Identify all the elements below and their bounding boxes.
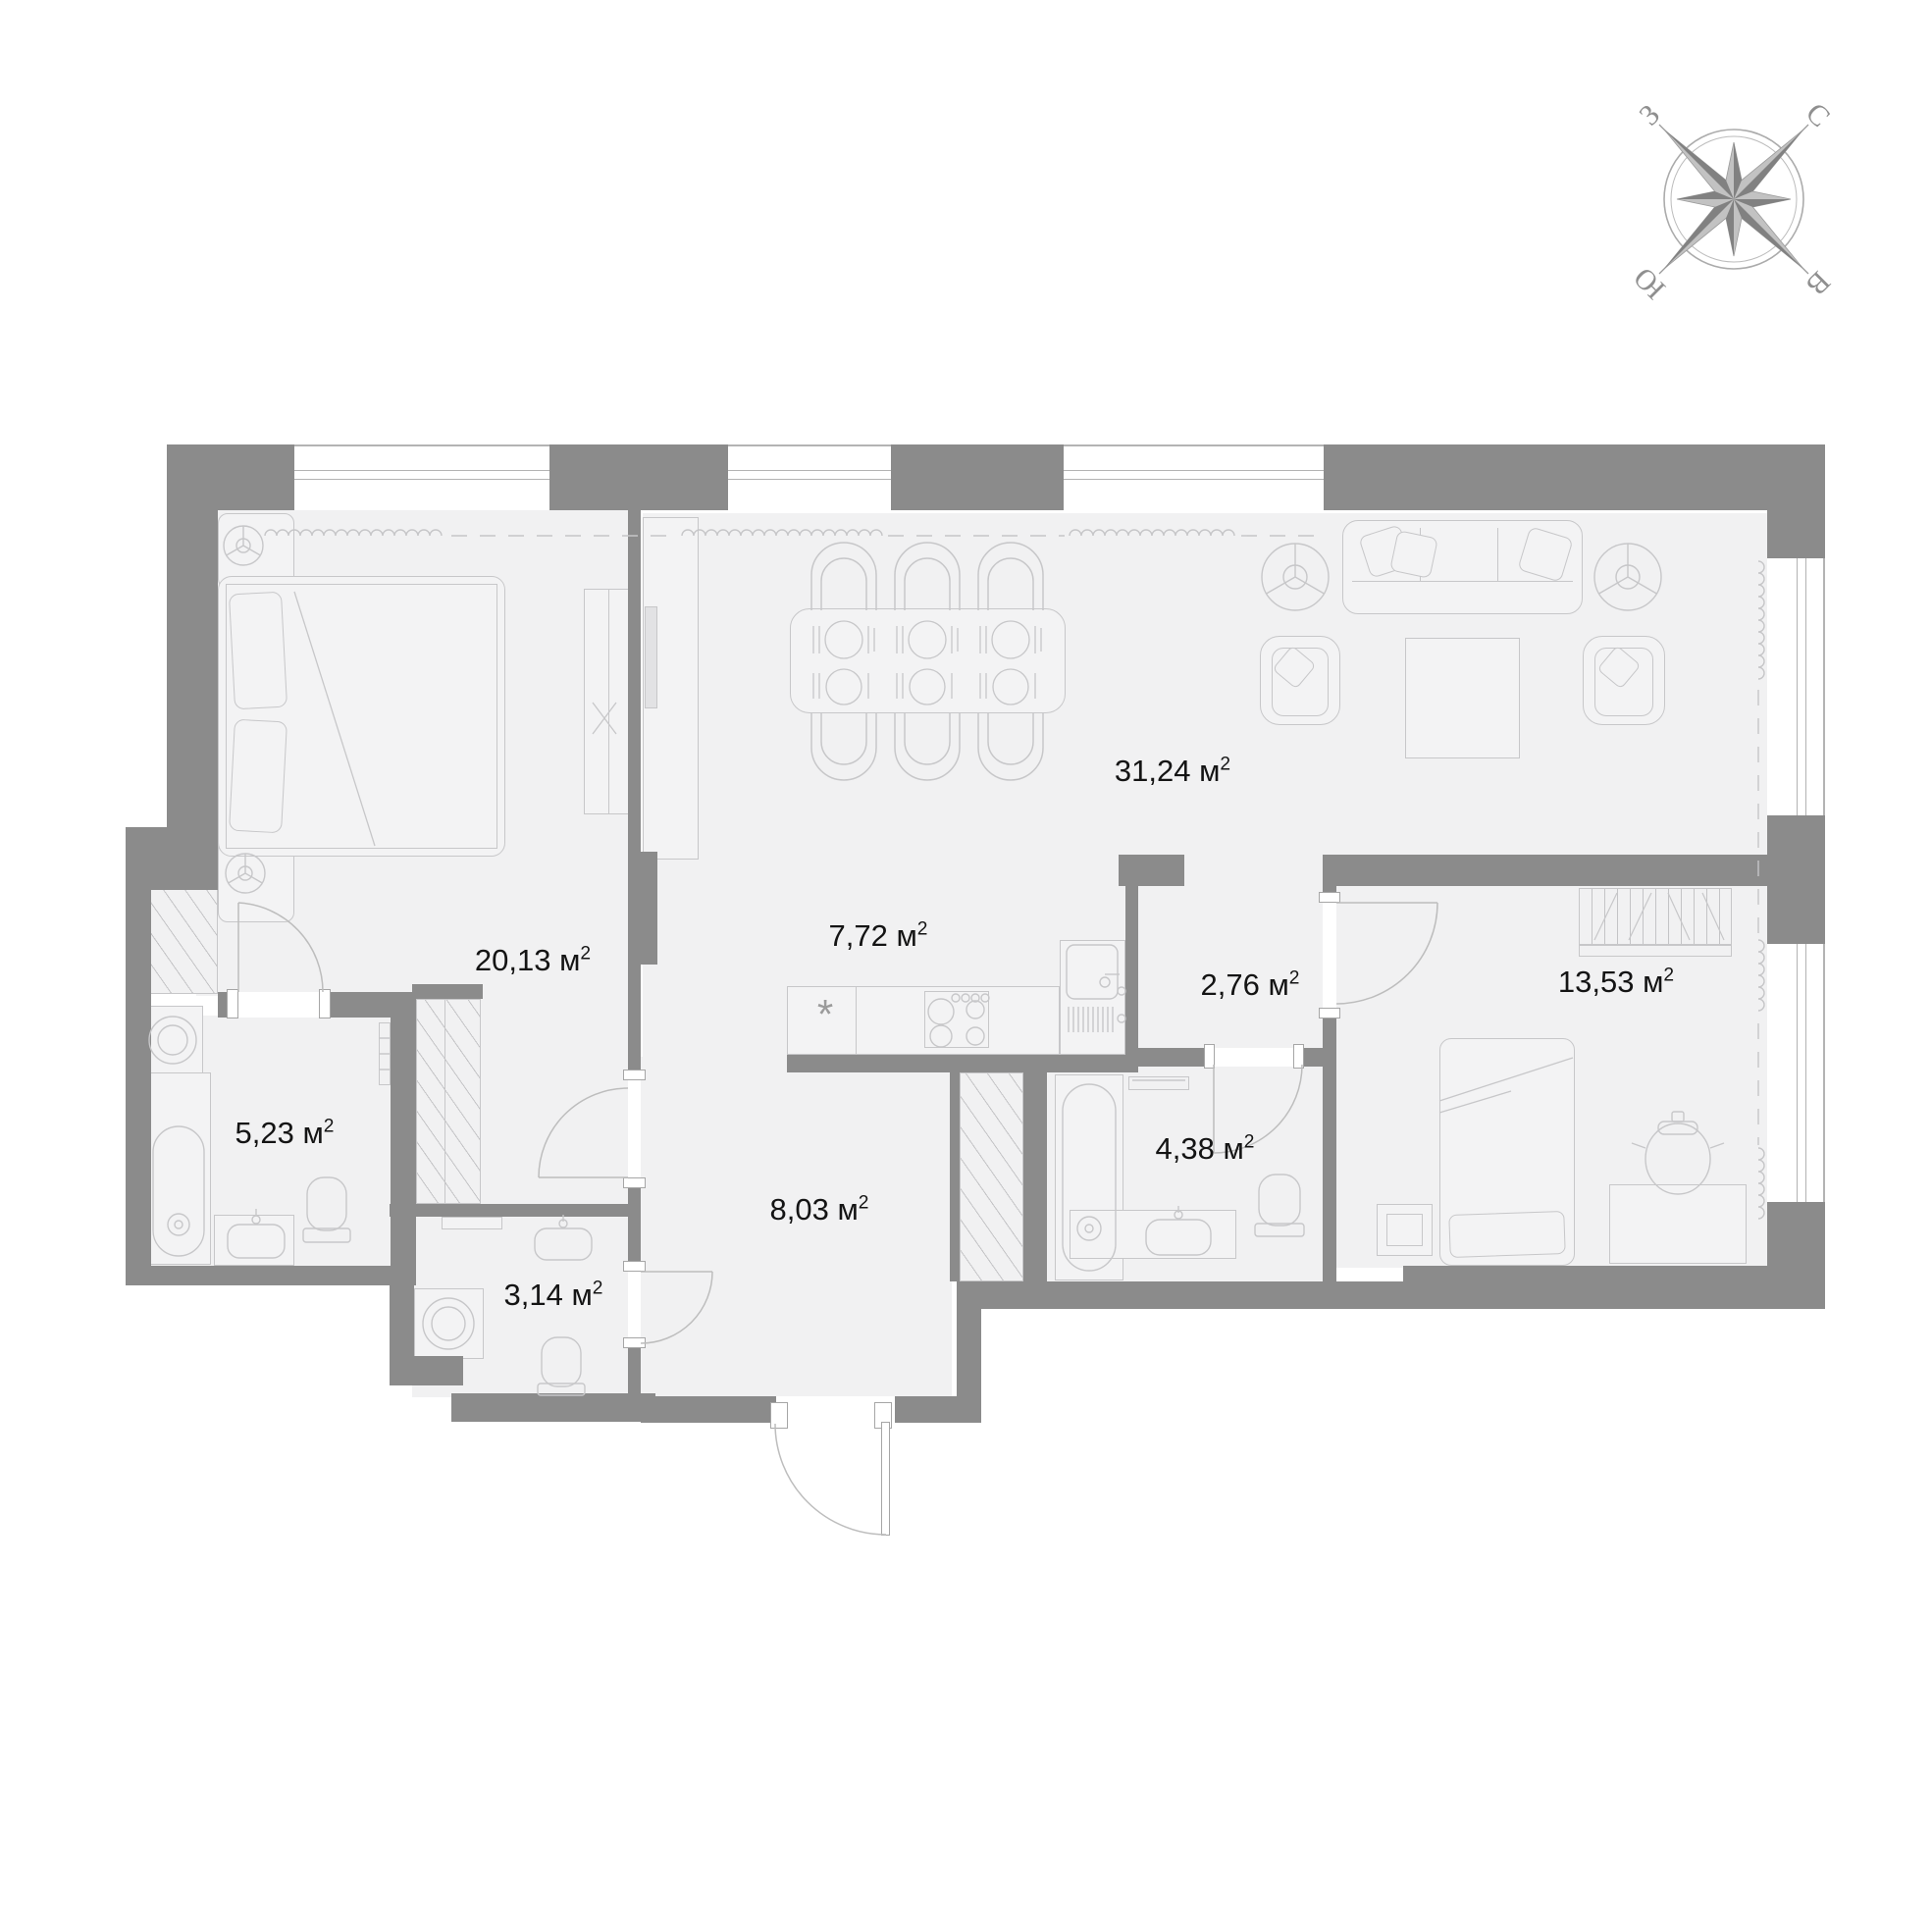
room-label-ensuite: 5,23 м2 [235, 1116, 335, 1151]
door-ensuite [238, 903, 323, 992]
room-label-wc: 3,14 м2 [504, 1278, 603, 1313]
room-label-bathroom-second: 4,38 м2 [1156, 1131, 1255, 1167]
door-bedroom2 [1336, 903, 1437, 1004]
room-label-living-dining: 31,24 м2 [1115, 754, 1230, 789]
floor-plan: С В Ю З 31,24 м2 20,13 м2 7,72 м2 2,76 м… [0, 0, 1932, 1932]
bath-fixtures [149, 1017, 1304, 1395]
lamp-symbols [224, 526, 1661, 893]
room-label-inner-hall: 2,76 м2 [1201, 967, 1300, 1003]
room-label-bedroom-second: 13,53 м2 [1558, 965, 1674, 1000]
desk-chair [1632, 1112, 1724, 1194]
kitchen-symbols [928, 945, 1125, 1047]
room-label-bedroom-main: 20,13 м2 [475, 943, 591, 978]
curtain-lines [265, 530, 1764, 1219]
compass-rose: С В Ю З [1628, 97, 1837, 306]
fridge-symbol: * [817, 991, 833, 1038]
place-settings [813, 621, 1041, 705]
room-label-kitchen-zone: 7,72 м2 [829, 918, 928, 954]
dining-chairs [811, 543, 1043, 780]
door-entrance [775, 1424, 886, 1535]
door-wc [641, 1272, 712, 1343]
wardrobe-second-hatch [1594, 893, 1724, 940]
room-label-hallway: 8,03 м2 [770, 1192, 869, 1227]
door-gardero [539, 1088, 628, 1177]
